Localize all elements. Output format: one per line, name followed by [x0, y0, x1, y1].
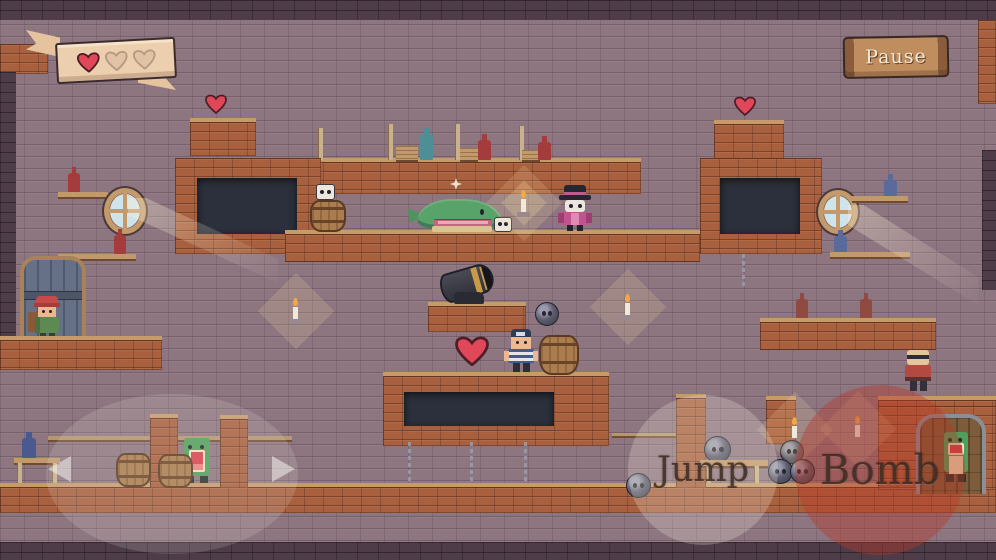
- player-eye: [524, 341, 527, 344]
- pirate-skull-face: [565, 200, 585, 212]
- candle-base: [517, 212, 530, 217]
- player-leg: [523, 363, 530, 372]
- pirate-arm: [558, 213, 564, 223]
- blue-bottle: [22, 438, 36, 458]
- npc-face: [38, 307, 56, 317]
- red-bottle: [478, 140, 491, 160]
- pirate2-belt: [905, 377, 931, 381]
- wall-shelf: [58, 192, 108, 199]
- player-striped-shirt: [508, 349, 534, 363]
- health-banner: [26, 26, 178, 90]
- bomb-button[interactable]: Bomb: [795, 385, 965, 555]
- whale-enemy: [408, 197, 505, 232]
- shelf-post: [388, 124, 393, 160]
- pirate2-leg: [910, 381, 917, 391]
- hud-heart: [76, 51, 100, 72]
- right-edge-column: [982, 150, 996, 290]
- player-character: [504, 329, 538, 373]
- pirate2-eyeband: [907, 355, 929, 359]
- whale-eye: [480, 209, 484, 215]
- shelf-stack: [460, 148, 478, 162]
- blue-jug: [884, 180, 897, 196]
- jump-button-label: Jump: [657, 450, 749, 490]
- shelf-stack: [396, 146, 418, 162]
- left-dark-window: [197, 178, 297, 234]
- red-bottle: [114, 235, 126, 254]
- top-right-brick-strip: [978, 20, 996, 104]
- cannon: [436, 264, 500, 306]
- left-arrow-icon[interactable]: [48, 456, 71, 482]
- hud-heart: [104, 50, 128, 71]
- long-dark-window: [404, 392, 554, 426]
- platform-topleft: [190, 118, 256, 156]
- left-ledge-platform: [0, 336, 162, 370]
- red-bottle: [538, 142, 551, 160]
- skull-eye: [327, 190, 331, 194]
- hud-heart: [132, 48, 156, 69]
- whale-lip: [438, 221, 488, 224]
- pirate2-leg: [920, 381, 927, 391]
- bomb-button-label: Bomb: [820, 446, 940, 494]
- skull-pirate-enemy: [556, 185, 594, 231]
- wall-shelf: [830, 252, 910, 259]
- right-arrow-icon[interactable]: [272, 456, 295, 482]
- hanging-chain: [524, 442, 527, 482]
- player-face: [511, 337, 531, 349]
- red-bottle: [860, 299, 872, 318]
- candle-stick: [625, 303, 630, 315]
- game-viewport: Pause Jump Bomb: [0, 0, 996, 560]
- pirate-arm: [586, 213, 592, 223]
- candle-stick: [293, 307, 298, 319]
- candle-base: [289, 319, 302, 324]
- pirate-leg: [577, 225, 583, 231]
- jump-button[interactable]: Jump: [628, 395, 778, 545]
- heart-pickup: [734, 96, 756, 116]
- pirate-leg: [567, 225, 573, 231]
- hanging-chain: [470, 442, 473, 482]
- pause-button-label: Pause: [865, 45, 927, 68]
- red-bottle: [796, 299, 808, 318]
- banner-parchment: [55, 37, 177, 84]
- right-dark-window: [720, 178, 800, 234]
- npc-eye: [49, 310, 52, 313]
- wall-candle: [269, 284, 323, 344]
- pirate-eye: [569, 204, 573, 208]
- skull-eye: [504, 222, 508, 226]
- cannon-mount: [454, 292, 484, 304]
- hanging-chain: [742, 254, 745, 288]
- skull-eye: [320, 190, 324, 194]
- pause-button[interactable]: Pause: [843, 35, 950, 79]
- top-border-bricks: [0, 0, 996, 20]
- player-arm: [504, 351, 509, 361]
- teal-bottle: [420, 134, 433, 160]
- left-edge-column: [0, 72, 16, 338]
- wall-candle: [601, 280, 655, 340]
- player-leg: [513, 363, 520, 372]
- candle-base: [621, 315, 634, 320]
- cannon-platform: [428, 302, 526, 332]
- candle-glow: [258, 273, 334, 349]
- pirate-eye: [578, 204, 582, 208]
- dpad-zone[interactable]: [46, 394, 298, 554]
- candle-flame: [293, 298, 298, 306]
- shelf-post: [318, 128, 323, 160]
- porthole-window: [104, 188, 146, 234]
- hanging-chain: [408, 442, 411, 482]
- heart-pickup: [205, 94, 227, 114]
- candle-stick: [521, 199, 526, 212]
- mid-platform: [285, 230, 700, 262]
- red-bottle: [68, 173, 80, 192]
- barrel: [539, 335, 579, 375]
- cannonball: [535, 302, 559, 326]
- whale-base: [432, 226, 492, 232]
- candle-flame: [625, 294, 630, 302]
- player-arm: [533, 351, 538, 361]
- wall-shelf: [852, 196, 908, 203]
- skull-block: [316, 184, 335, 200]
- pirate-chest: [571, 213, 579, 225]
- right-mid-platform: [760, 318, 936, 350]
- platform-topright: [714, 120, 784, 160]
- skull-eye: [498, 222, 502, 226]
- player-eye: [516, 341, 519, 344]
- barrel: [310, 200, 346, 232]
- blue-jug: [834, 236, 847, 252]
- player-hat-patch: [516, 332, 525, 336]
- skull-block: [494, 217, 512, 232]
- heart-pickup: [455, 336, 489, 366]
- npc-strap: [35, 317, 40, 333]
- npc-eye: [42, 310, 45, 313]
- candle-glow: [590, 269, 666, 345]
- table-leg: [17, 463, 22, 483]
